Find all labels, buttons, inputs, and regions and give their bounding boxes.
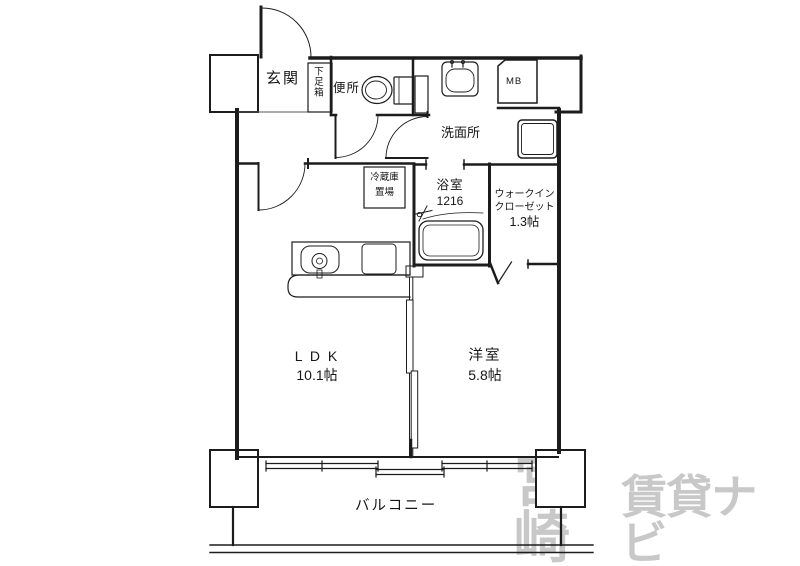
bedroom-label: 洋室 5.8帖 bbox=[445, 346, 525, 386]
walkin-closet-label-line2: クローゼット bbox=[489, 201, 560, 214]
toilet-door bbox=[336, 115, 379, 158]
bathroom-label-name: 浴室 bbox=[424, 178, 476, 194]
pipe-shaft bbox=[415, 76, 428, 113]
bathroom-label-size: 1216 bbox=[424, 194, 476, 209]
kitchen-sink-icon bbox=[301, 246, 339, 278]
floorplan-linework bbox=[0, 0, 800, 566]
genkan-label: 玄関 bbox=[266, 70, 300, 89]
fridge-space-label-line1: 冷蔵庫 bbox=[364, 171, 405, 186]
ldk-entry-door bbox=[259, 163, 306, 210]
floorplan: 宮崎 賃貸ナビ bbox=[0, 0, 800, 566]
sliding-partition bbox=[406, 266, 423, 457]
bedroom-label-size: 5.8帖 bbox=[445, 366, 525, 386]
walkin-closet-label-size: 1.3帖 bbox=[489, 214, 560, 230]
bedroom-label-name: 洋室 bbox=[445, 346, 525, 366]
bathtub-icon bbox=[419, 213, 483, 260]
stove-icon bbox=[362, 244, 396, 274]
washer-pan-icon bbox=[518, 120, 557, 158]
ldk-label-size: 10.1帖 bbox=[277, 366, 357, 385]
ldk-label: L D K 10.1帖 bbox=[277, 347, 357, 385]
washroom-door bbox=[386, 112, 428, 158]
washbasin-icon bbox=[442, 60, 478, 96]
walkin-closet-label-line1: ウォークイン bbox=[489, 188, 560, 201]
walkin-closet-label: ウォークイン クローゼット 1.3帖 bbox=[489, 188, 560, 230]
balcony-windows bbox=[237, 440, 558, 477]
bathroom-label: 浴室 1216 bbox=[424, 178, 476, 209]
shoebox-label: 下足箱 bbox=[311, 66, 323, 110]
toilet-fixture-icon bbox=[362, 77, 413, 105]
fridge-space-label-line2: 置場 bbox=[364, 186, 405, 201]
entrance-door bbox=[261, 7, 311, 57]
pillar-bottom-right bbox=[536, 450, 585, 507]
pillar-bottom-left bbox=[210, 450, 258, 507]
balcony-label: バルコニー bbox=[355, 497, 437, 515]
washroom-label: 洗面所 bbox=[441, 125, 480, 141]
ldk-label-name: L D K bbox=[277, 347, 357, 366]
meter-box-label: MB bbox=[506, 76, 522, 88]
toilet-label: 便所 bbox=[333, 81, 360, 97]
pillar-top-left bbox=[210, 55, 258, 112]
fridge-space-label: 冷蔵庫 置場 bbox=[364, 171, 405, 200]
kitchen-counter bbox=[288, 242, 410, 297]
closet-folding-door bbox=[490, 262, 512, 283]
